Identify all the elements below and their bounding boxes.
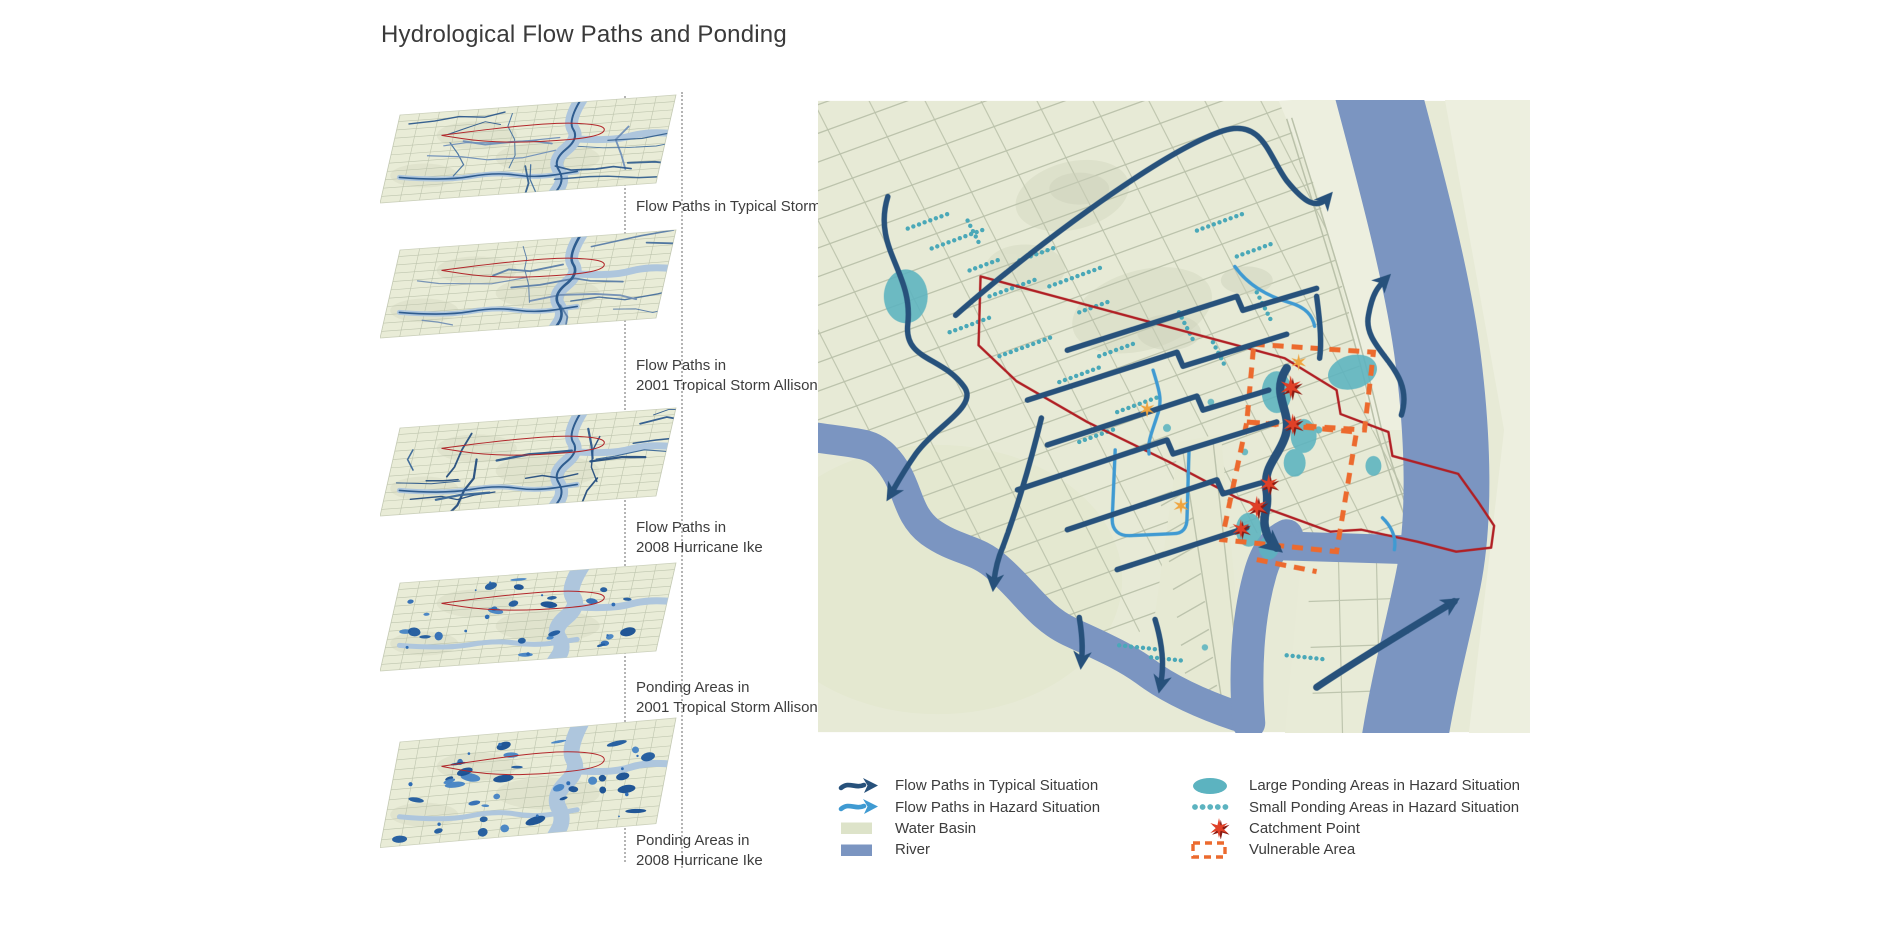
layer-label-3: Flow Paths in 2008 Hurricane Ike (636, 518, 763, 557)
layer-label-2: Flow Paths in 2001 Tropical Storm Alliso… (636, 356, 818, 395)
legend-label: Large Ponding Areas in Hazard Situation (1249, 777, 1520, 794)
layer-label-5: Ponding Areas in 2008 Hurricane Ike (636, 831, 763, 870)
page-title: Hydrological Flow Paths and Ponding (381, 21, 787, 49)
water-basin-swatch-icon (838, 818, 882, 838)
legend-label: Water Basin (895, 820, 976, 837)
legend-label: Catchment Point (1249, 820, 1360, 837)
layer-map-flow-ike (380, 398, 690, 533)
small-ponding-dots-icon (1190, 797, 1236, 817)
legend-row-typical-flow: Flow Paths in Typical Situation (838, 775, 1100, 796)
light-flow-arrow-icon (838, 797, 882, 817)
legend-row-catchment: Catchment Point (1190, 818, 1520, 839)
legend-row-water-basin: Water Basin (838, 818, 1100, 839)
layer-label-1: Flow Paths in Typical Storm (636, 197, 821, 217)
legend-left-column: Flow Paths in Typical Situation Flow Pat… (838, 775, 1100, 861)
layer-label-2-line2: 2001 Tropical Storm Allison (636, 376, 818, 396)
legend-row-vulnerable: Vulnerable Area (1190, 839, 1520, 860)
layer-label-5-line1: Ponding Areas in (636, 831, 763, 851)
layer-map-ponding-allison (380, 553, 690, 688)
infographic-page: Hydrological Flow Paths and Ponding Flow… (0, 0, 1900, 927)
dark-flow-arrow-icon (838, 776, 882, 796)
layer-label-5-line2: 2008 Hurricane Ike (636, 851, 763, 871)
layer-label-4-line1: Ponding Areas in (636, 678, 818, 698)
legend-label: River (895, 841, 930, 858)
catchment-star-icon (1196, 817, 1242, 839)
legend-label: Flow Paths in Hazard Situation (895, 799, 1100, 816)
layer-label-1-line1: Flow Paths in Typical Storm (636, 197, 821, 217)
layer-label-3-line2: 2008 Hurricane Ike (636, 538, 763, 558)
river-swatch-icon (838, 840, 882, 860)
vulnerable-dashed-icon (1190, 840, 1236, 860)
legend-label: Flow Paths in Typical Situation (895, 777, 1098, 794)
layer-map-flow-allison (380, 220, 690, 355)
layer-label-2-line1: Flow Paths in (636, 356, 818, 376)
layer-label-4: Ponding Areas in 2001 Tropical Storm All… (636, 678, 818, 717)
main-map (818, 100, 1530, 733)
large-ponding-ellipse-icon (1190, 776, 1236, 796)
legend-right-column: Large Ponding Areas in Hazard Situation … (1190, 775, 1520, 861)
legend-label: Vulnerable Area (1249, 841, 1355, 858)
legend-row-river: River (838, 839, 1100, 860)
layer-label-4-line2: 2001 Tropical Storm Allison (636, 698, 818, 718)
legend-label: Small Ponding Areas in Hazard Situation (1249, 799, 1519, 816)
legend-row-small-ponding: Small Ponding Areas in Hazard Situation (1190, 796, 1520, 817)
legend-row-hazard-flow: Flow Paths in Hazard Situation (838, 796, 1100, 817)
legend-row-large-ponding: Large Ponding Areas in Hazard Situation (1190, 775, 1520, 796)
layer-label-3-line1: Flow Paths in (636, 518, 763, 538)
